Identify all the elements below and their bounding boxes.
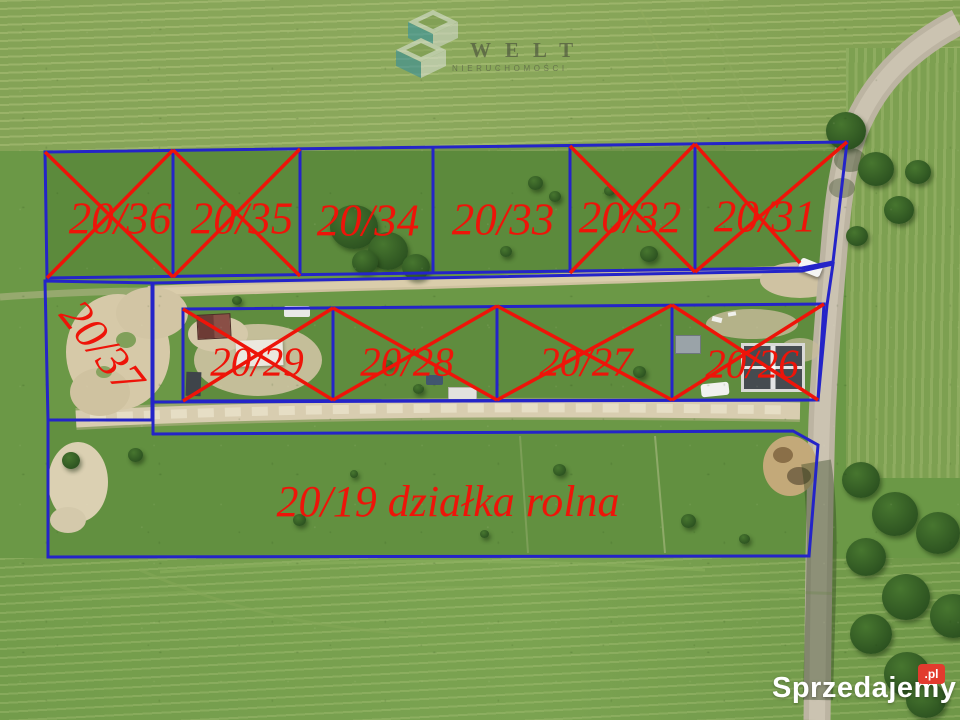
plot-label-20-32: 20/32: [579, 196, 682, 241]
agency-subtitle: NIERUCHOMOŚCI: [452, 64, 568, 73]
plot-label-20-36: 20/36: [69, 197, 172, 242]
plot-label-20-29: 20/29: [210, 342, 303, 383]
portal-watermark: Sprzedajemy .pl: [770, 662, 950, 710]
agency-name: WELT: [470, 38, 587, 63]
agency-logo-icon: [386, 6, 468, 88]
portal-tld-badge: .pl: [918, 664, 945, 684]
plot-label-20-31: 20/31: [714, 195, 817, 240]
plot-label-20-33: 20/33: [452, 198, 555, 243]
plot-label-20-19: 20/19 działka rolna: [276, 480, 619, 524]
plot-label-20-34: 20/34: [317, 199, 420, 244]
aerial-plot-map: 20/36 20/35 20/34 20/33 20/32 20/31 20/3…: [0, 0, 960, 720]
plot-label-20-26: 20/26: [705, 344, 798, 385]
plot-label-20-28: 20/28: [360, 342, 453, 383]
plot-label-20-27: 20/27: [539, 342, 632, 383]
agency-watermark: WELT NIERUCHOMOŚCI: [386, 6, 616, 88]
plot-label-20-35: 20/35: [191, 197, 294, 242]
